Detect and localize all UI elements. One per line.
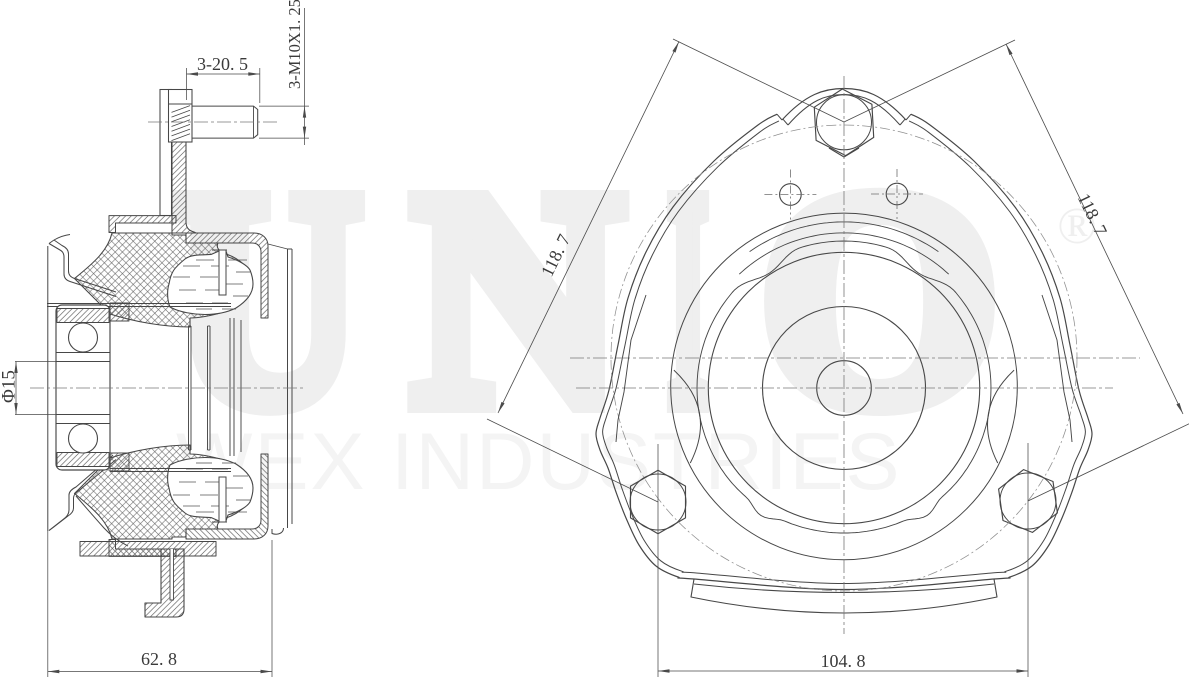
svg-text:Φ15: Φ15 (0, 370, 20, 403)
svg-text:3-20. 5: 3-20. 5 (197, 54, 248, 74)
svg-text:104. 8: 104. 8 (821, 651, 866, 671)
svg-text:62. 8: 62. 8 (141, 649, 177, 669)
svg-text:WEX INDUSTRIES: WEX INDUSTRIES (176, 417, 902, 507)
svg-text:3-M10X1. 25: 3-M10X1. 25 (285, 0, 304, 89)
